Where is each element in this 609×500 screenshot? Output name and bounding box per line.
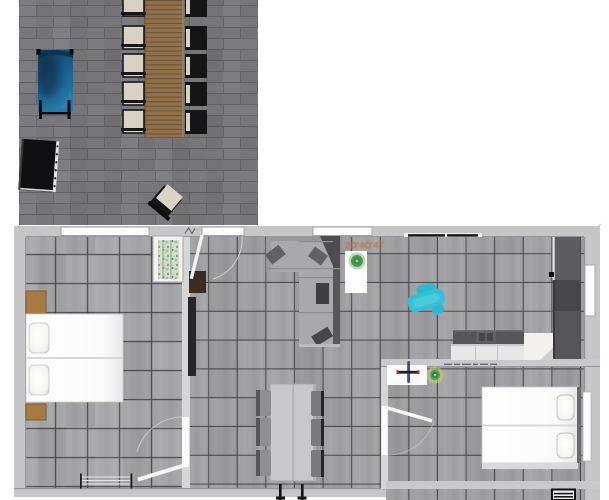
svg-text:2O'4O'4T: 2O'4O'4T <box>345 241 384 251</box>
